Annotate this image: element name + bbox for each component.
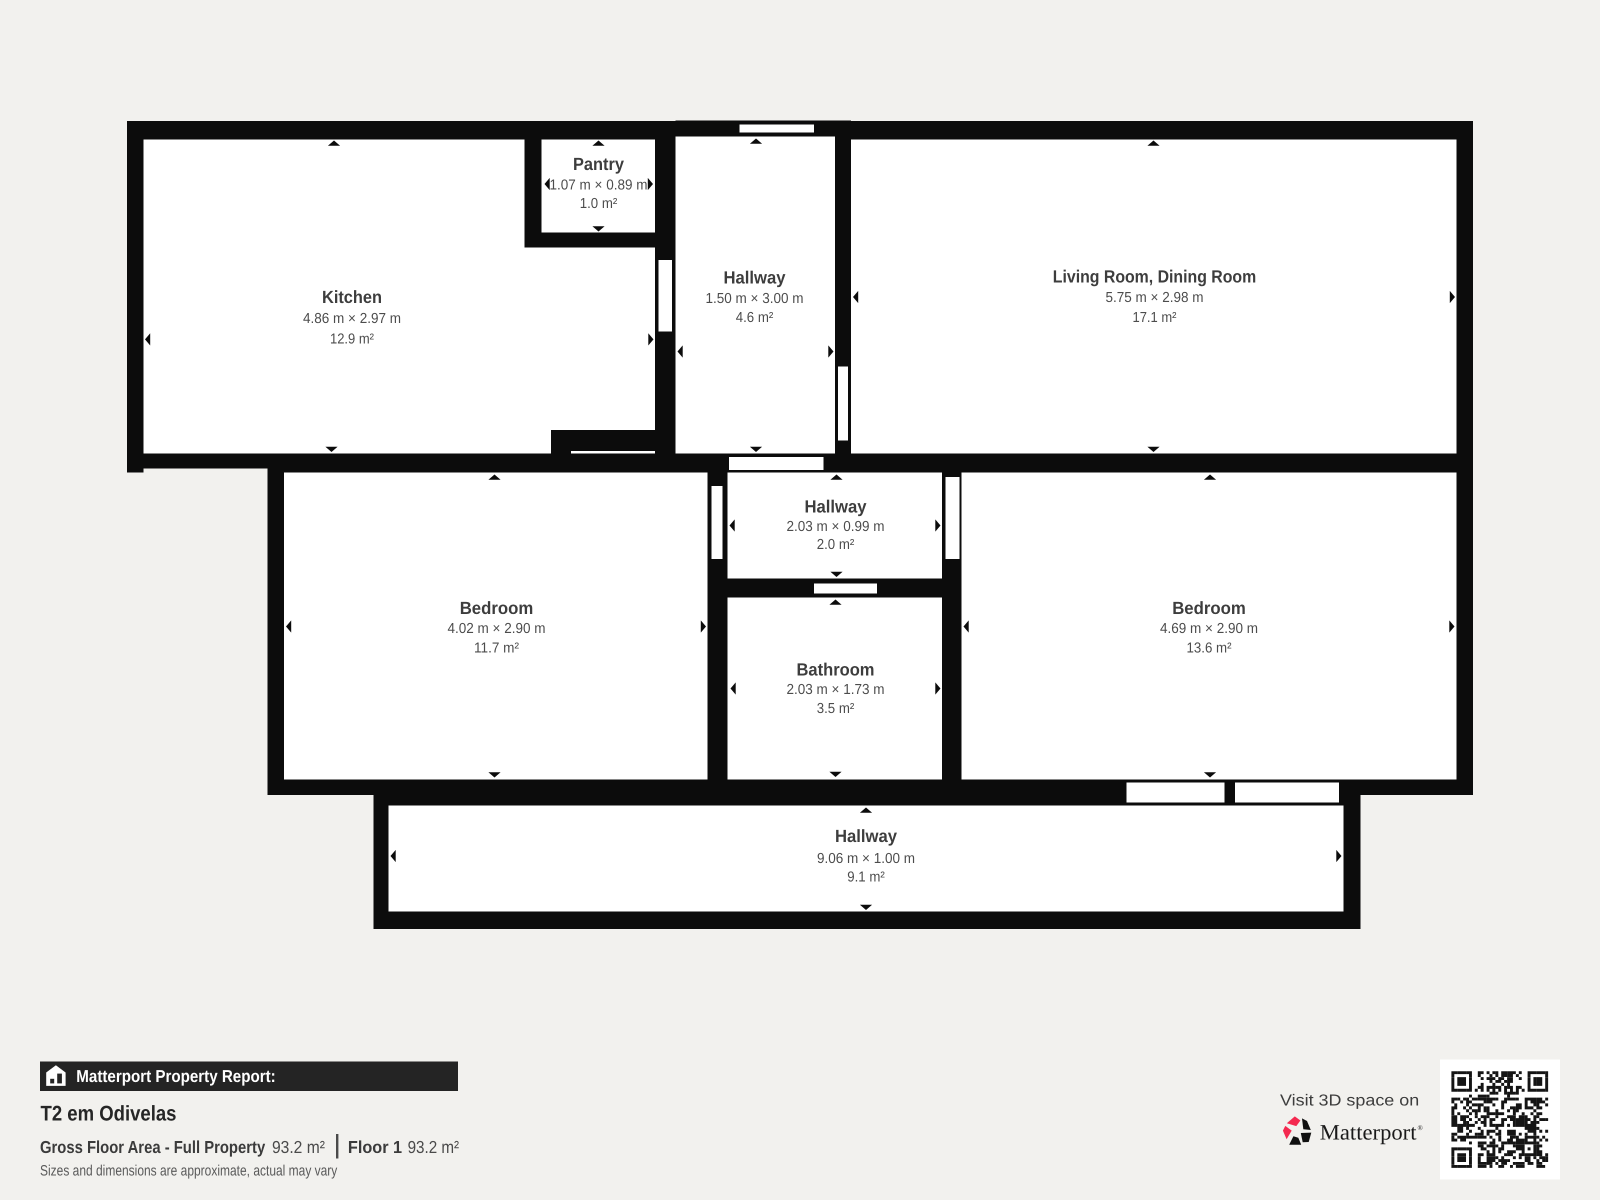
svg-text:Pantry: Pantry [573, 154, 624, 174]
svg-text:4.69 m × 2.90 m: 4.69 m × 2.90 m [1160, 621, 1258, 637]
svg-text:13.6 m²: 13.6 m² [1187, 640, 1232, 656]
svg-text:4.86 m × 2.97 m: 4.86 m × 2.97 m [303, 311, 401, 327]
svg-text:11.7 m²: 11.7 m² [474, 640, 519, 656]
svg-text:2.0 m²: 2.0 m² [817, 537, 855, 553]
svg-text:12.9 m²: 12.9 m² [330, 331, 374, 347]
svg-text:93.2 m²: 93.2 m² [272, 1137, 325, 1157]
svg-text:Hallway: Hallway [805, 497, 867, 517]
svg-text:2.03 m × 1.73 m: 2.03 m × 1.73 m [787, 682, 885, 698]
svg-text:Gross Floor Area - Full Proper: Gross Floor Area - Full Property [40, 1137, 265, 1157]
svg-text:Bathroom: Bathroom [797, 660, 875, 680]
svg-text:93.2 m²: 93.2 m² [408, 1137, 460, 1157]
svg-text:Hallway: Hallway [835, 826, 897, 846]
svg-text:4.6 m²: 4.6 m² [736, 310, 774, 326]
svg-text:Bedroom: Bedroom [1172, 598, 1246, 618]
svg-text:5.75 m × 2.98 m: 5.75 m × 2.98 m [1106, 290, 1204, 306]
svg-text:®: ® [1418, 1124, 1424, 1132]
svg-text:Matterport: Matterport [1320, 1119, 1417, 1144]
svg-text:1.0 m²: 1.0 m² [580, 196, 618, 212]
svg-text:4.02 m × 2.90 m: 4.02 m × 2.90 m [448, 621, 546, 637]
svg-text:Matterport Property Report:: Matterport Property Report: [76, 1066, 275, 1086]
svg-text:9.06 m × 1.00 m: 9.06 m × 1.00 m [817, 851, 915, 867]
svg-text:1.50 m × 3.00 m: 1.50 m × 3.00 m [706, 291, 804, 307]
svg-text:Living Room, Dining Room: Living Room, Dining Room [1053, 267, 1256, 287]
svg-text:1.07 m × 0.89 m: 1.07 m × 0.89 m [550, 177, 648, 193]
svg-text:3.5 m²: 3.5 m² [817, 701, 855, 717]
svg-text:Sizes and dimensions are appro: Sizes and dimensions are approximate, ac… [40, 1163, 338, 1180]
svg-text:T2 em Odivelas: T2 em Odivelas [41, 1102, 177, 1126]
svg-text:Visit 3D space on: Visit 3D space on [1280, 1093, 1419, 1110]
svg-text:Floor 1: Floor 1 [348, 1137, 402, 1157]
svg-text:Hallway: Hallway [724, 268, 786, 288]
svg-text:9.1 m²: 9.1 m² [847, 869, 885, 885]
svg-text:Kitchen: Kitchen [322, 287, 382, 307]
svg-text:Bedroom: Bedroom [460, 598, 534, 618]
svg-text:2.03 m × 0.99 m: 2.03 m × 0.99 m [787, 519, 885, 535]
svg-text:17.1 m²: 17.1 m² [1133, 310, 1177, 326]
